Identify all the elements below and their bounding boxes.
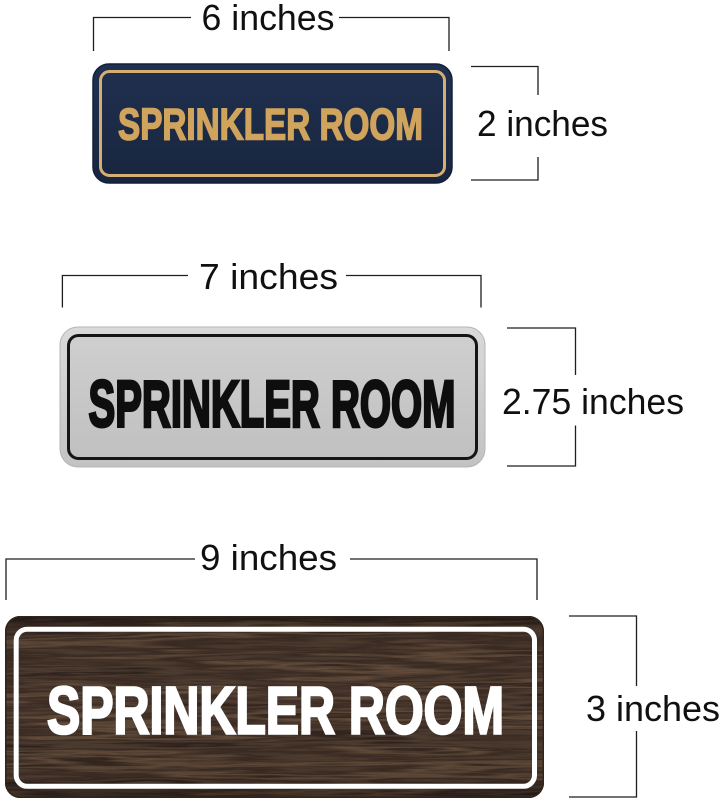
svg-text:6 inches: 6 inches <box>202 0 335 38</box>
svg-text:SPRINKLER ROOM: SPRINKLER ROOM <box>89 368 456 441</box>
svg-text:2.75 inches: 2.75 inches <box>502 381 684 422</box>
svg-text:7 inches: 7 inches <box>199 256 338 297</box>
svg-text:SPRINKLER ROOM: SPRINKLER ROOM <box>47 674 504 749</box>
svg-text:3 inches: 3 inches <box>586 688 720 729</box>
svg-text:9 inches: 9 inches <box>200 537 337 578</box>
svg-text:SPRINKLER ROOM: SPRINKLER ROOM <box>118 101 423 150</box>
svg-text:2 inches: 2 inches <box>477 103 608 144</box>
